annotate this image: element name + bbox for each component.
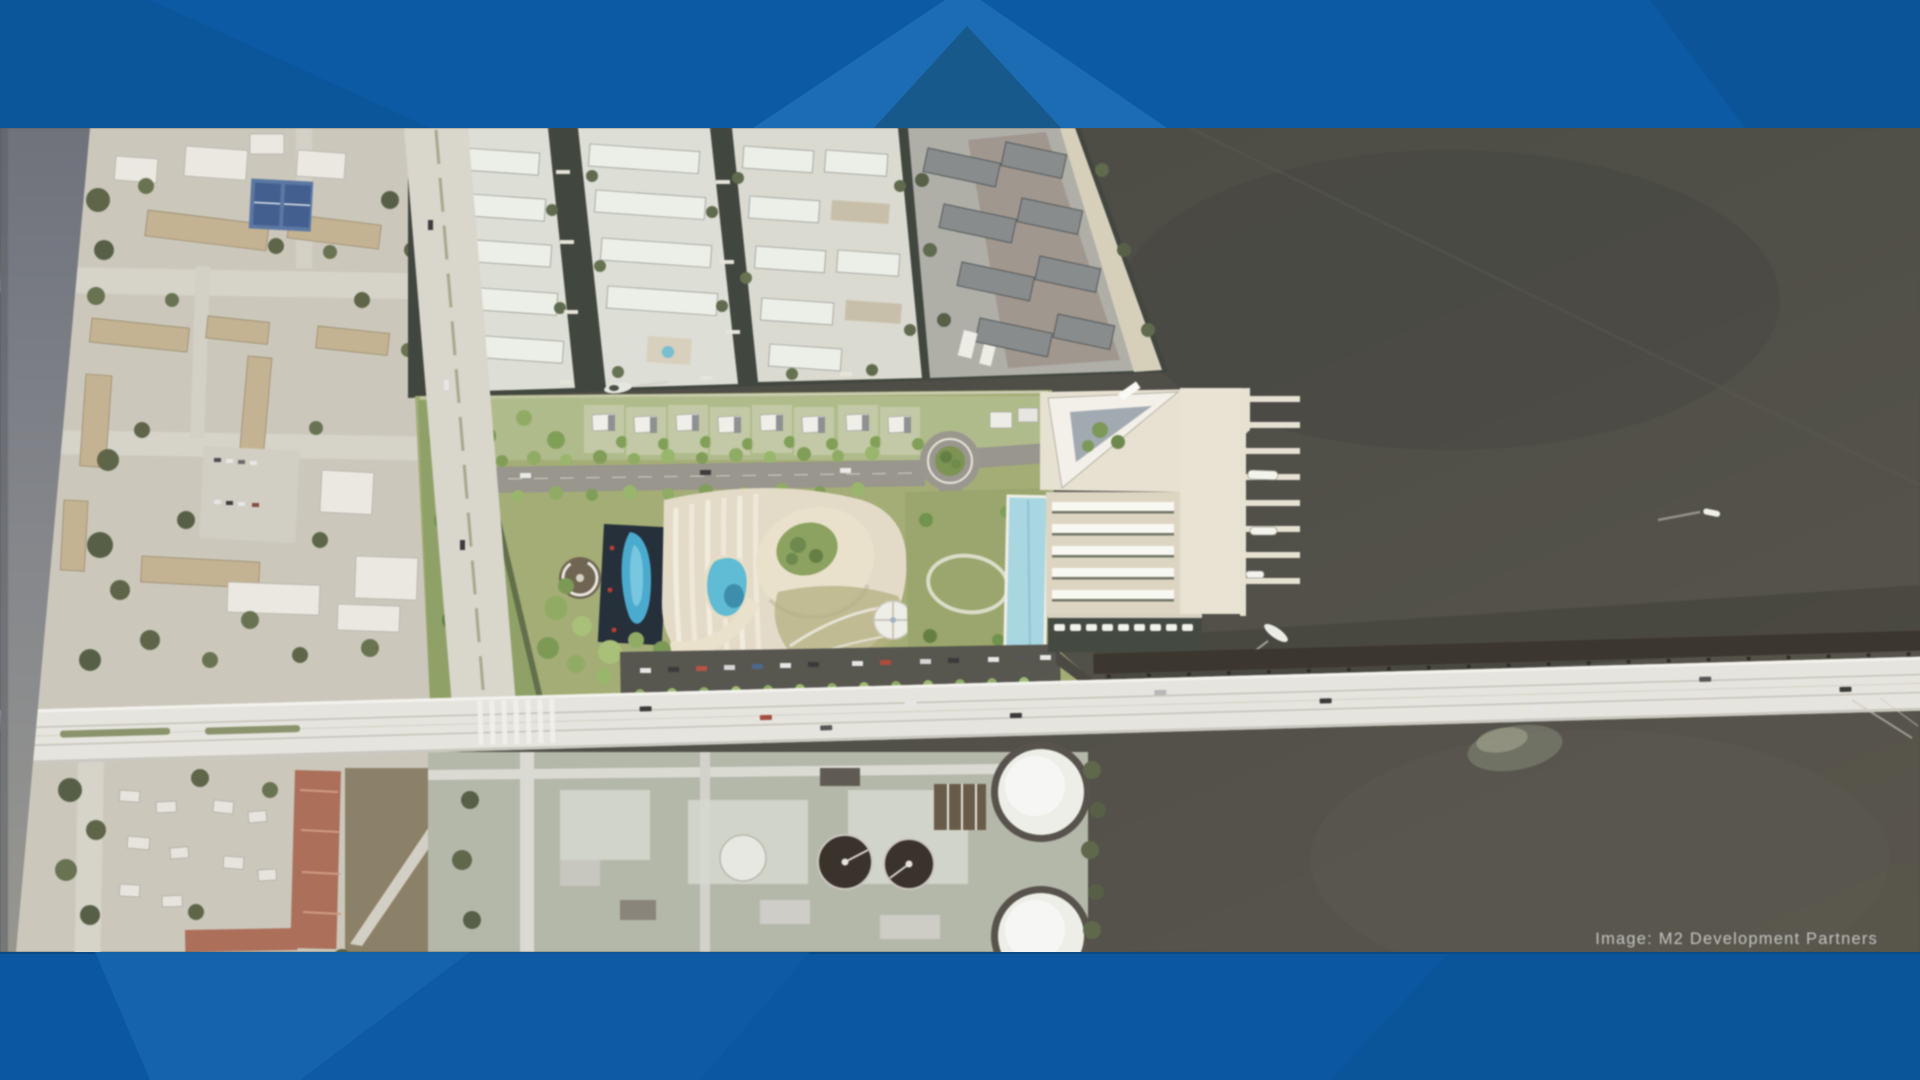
lap-pool (1005, 496, 1048, 655)
parking-lot (199, 446, 300, 543)
tennis-courts (249, 178, 314, 231)
top-bar (0, 0, 1920, 128)
boat-rack-rows (1046, 492, 1180, 616)
south-slips (1048, 614, 1202, 652)
aerial-rendering-scene: Image: M2 Development Partners (0, 0, 1920, 1080)
treatment-plant (428, 742, 1106, 986)
canal-condo-fingers (408, 128, 1168, 398)
aerial-photo: Image: M2 Development Partners (0, 128, 1920, 990)
condo-finger (732, 128, 922, 382)
bottom-bar (0, 952, 1920, 1080)
broadcast-still: Image: M2 Development Partners (0, 0, 1920, 1080)
credit-label: Image: M2 Development Partners (1595, 930, 1878, 948)
development-rendering (415, 390, 1104, 704)
teardrop-pool-court (598, 524, 668, 645)
condo-finger (578, 128, 738, 388)
round-tank (720, 835, 766, 881)
